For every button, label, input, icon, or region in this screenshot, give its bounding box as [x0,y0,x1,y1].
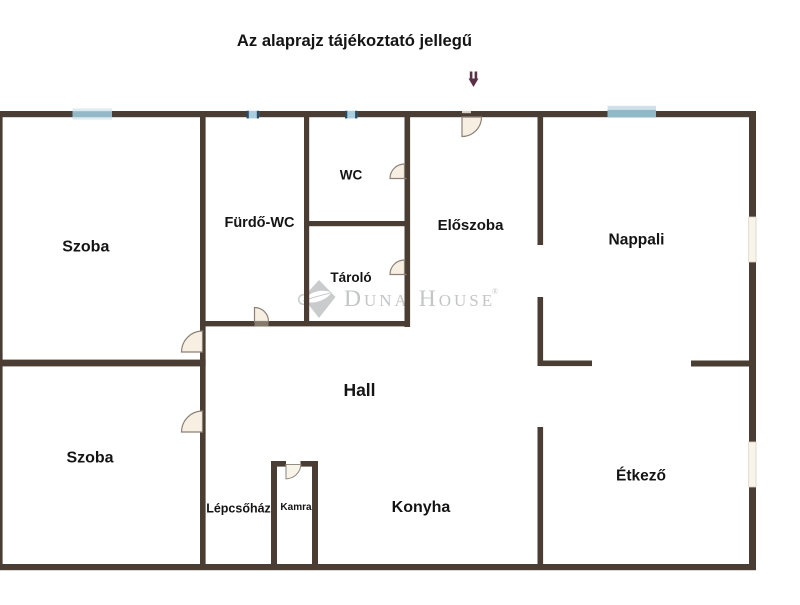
svg-text:Az alaprajz tájékoztató jelleg: Az alaprajz tájékoztató jellegű [237,31,472,50]
svg-text:Lépcsőház: Lépcsőház [206,502,271,516]
svg-text:Nappali: Nappali [609,232,665,249]
svg-text:Hall: Hall [343,380,375,400]
svg-text:Előszoba: Előszoba [438,217,505,234]
svg-text:Konyha: Konyha [392,499,451,516]
svg-text:Szoba: Szoba [66,450,113,467]
svg-text:Étkező: Étkező [616,468,666,485]
svg-text:Fürdő-WC: Fürdő-WC [224,215,295,231]
svg-text:Szoba: Szoba [62,239,109,256]
svg-text:®: ® [492,287,498,296]
svg-text:WC: WC [340,168,363,183]
svg-text:Kamra: Kamra [280,502,312,513]
svg-text:Tároló: Tároló [330,270,371,285]
